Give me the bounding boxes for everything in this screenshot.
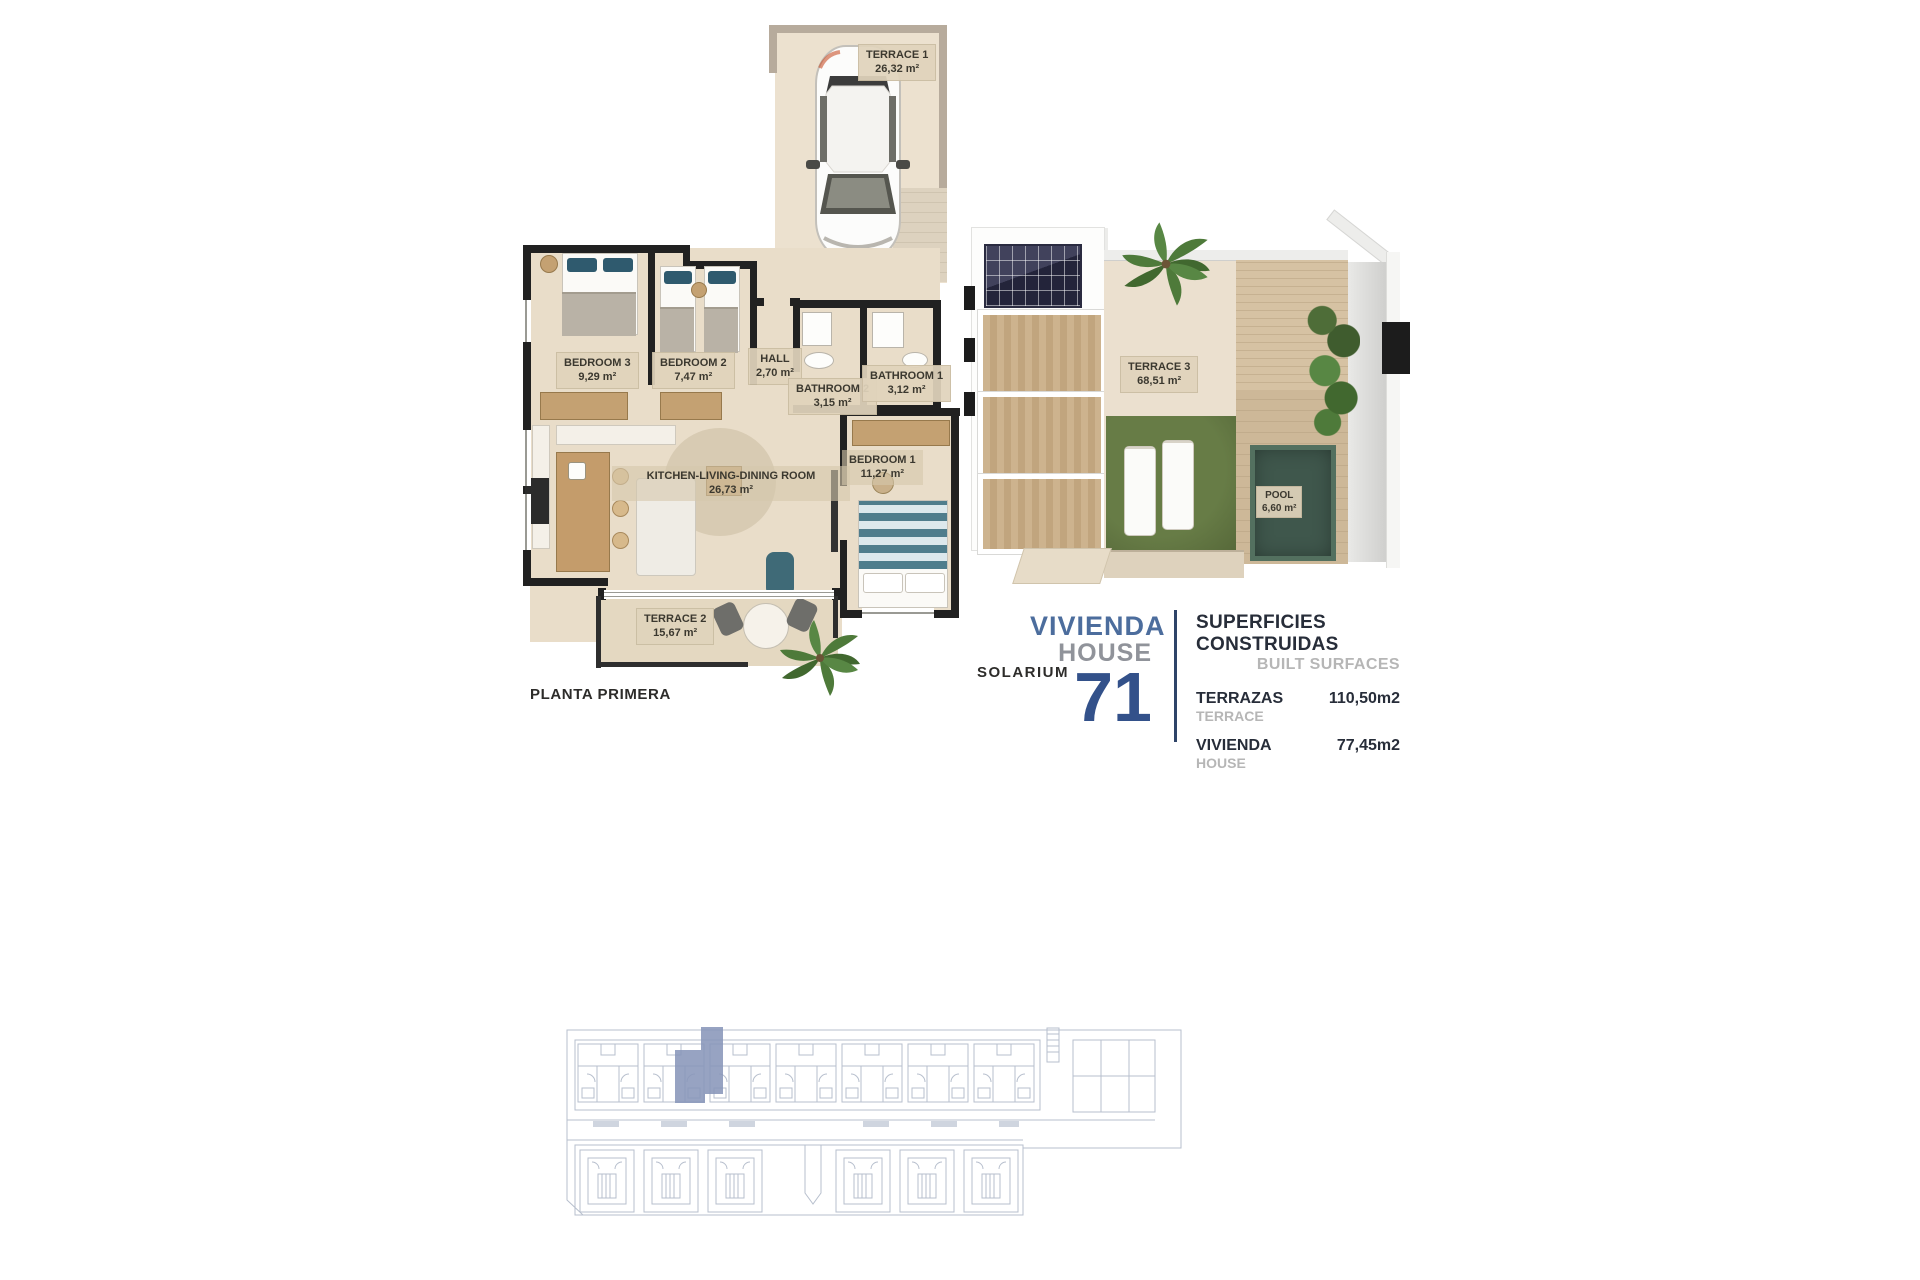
room-name: TERRACE 3: [1128, 360, 1190, 374]
room-area: 6,60 m²: [1262, 502, 1296, 515]
room-area: 15,67 m²: [644, 626, 706, 640]
surfaces-block: SUPERFICIES CONSTRUIDAS BUILT SURFACES T…: [1196, 612, 1400, 771]
room-area: 26,73 m²: [619, 483, 843, 497]
room-label-terrace3: TERRACE 3 68,51 m²: [1120, 356, 1198, 393]
room-area: 7,47 m²: [660, 370, 727, 384]
room-name: BEDROOM 1: [849, 453, 916, 467]
surface-row-terrazas: TERRAZAS 110,50m2 TERRACE: [1196, 690, 1400, 724]
entry-landing: [1012, 548, 1112, 584]
unit-number: 71: [1030, 667, 1152, 729]
surface-row-vivienda: VIVIENDA 77,45m2 HOUSE: [1196, 737, 1400, 771]
room-name: BATHROOM 1: [870, 369, 943, 383]
room-label-bedroom3: BEDROOM 3 9,29 m²: [556, 352, 639, 389]
room-label-terrace1: TERRACE 1 26,32 m²: [858, 44, 936, 81]
window: [521, 494, 531, 550]
sun-lounger: [1124, 446, 1156, 536]
room-area: 26,32 m²: [866, 62, 928, 76]
room-name: BATHROOM 2: [796, 382, 869, 396]
surface-label-en: HOUSE: [1196, 755, 1400, 771]
solarium-plan: TERRACE 3 68,51 m² POOL 6,60 m² SOLARIUM: [0, 0, 1920, 760]
surface-label-en: TERRACE: [1196, 708, 1400, 724]
room-area: 11,27 m²: [849, 467, 916, 481]
site-plan: [553, 1008, 1193, 1226]
room-area: 3,12 m²: [870, 383, 943, 397]
planter-box: [964, 338, 975, 362]
room-label-bedroom1: BEDROOM 1 11,27 m²: [842, 450, 923, 485]
room-area: 9,29 m²: [564, 370, 631, 384]
window: [521, 300, 531, 342]
brochure-page: TERRACE 1 26,32 m²: [0, 0, 1920, 1280]
room-name: BEDROOM 3: [564, 356, 631, 370]
surface-value: 110,50m2: [1329, 690, 1400, 708]
lower-terrace: [1104, 550, 1244, 578]
skylight: [978, 392, 1106, 478]
divider-line: [1174, 610, 1177, 742]
planter-box: [964, 392, 975, 416]
solar-panel: [984, 244, 1082, 308]
palm-tree-icon: [1120, 218, 1212, 310]
room-label-pool: POOL 6,60 m²: [1256, 486, 1302, 518]
palm-tree-icon: [778, 616, 862, 700]
surface-label-es: VIVIENDA: [1196, 737, 1272, 755]
window: [862, 608, 934, 618]
unit-title-block: VIVIENDA HOUSE 71: [1030, 612, 1152, 728]
room-name: POOL: [1262, 489, 1296, 502]
room-area: 3,15 m²: [796, 396, 869, 410]
room-label-bathroom1: BATHROOM 1 3,12 m²: [862, 365, 951, 402]
planter-box: [1382, 322, 1410, 374]
room-name: HALL: [756, 352, 794, 366]
surfaces-title-es: SUPERFICIES CONSTRUIDAS: [1196, 612, 1400, 656]
window: [521, 430, 531, 486]
skylight: [978, 310, 1106, 396]
skylight: [978, 474, 1106, 554]
room-area: 68,51 m²: [1128, 374, 1190, 388]
room-label-kitchen: KITCHEN-LIVING-DINING ROOM 26,73 m²: [612, 466, 850, 501]
surface-value: 77,45m2: [1337, 737, 1400, 755]
site-plan-highlighted-unit: [675, 1027, 723, 1103]
side-wall-outer: [1386, 252, 1400, 568]
room-label-bedroom2: BEDROOM 2 7,47 m²: [652, 352, 735, 389]
sun-lounger: [1162, 440, 1194, 530]
surfaces-title-en: BUILT SURFACES: [1196, 656, 1400, 674]
surface-label-es: TERRAZAS: [1196, 690, 1283, 708]
room-name: KITCHEN-LIVING-DINING ROOM: [619, 469, 843, 483]
room-name: TERRACE 1: [866, 48, 928, 62]
hedge-plants: [1306, 300, 1360, 436]
room-name: BEDROOM 2: [660, 356, 727, 370]
room-label-terrace2: TERRACE 2 15,67 m²: [636, 608, 714, 645]
unit-vivienda-label: VIVIENDA: [1030, 612, 1152, 640]
planter-box: [964, 286, 975, 310]
sliding-glass-door: [604, 590, 834, 599]
room-name: TERRACE 2: [644, 612, 706, 626]
